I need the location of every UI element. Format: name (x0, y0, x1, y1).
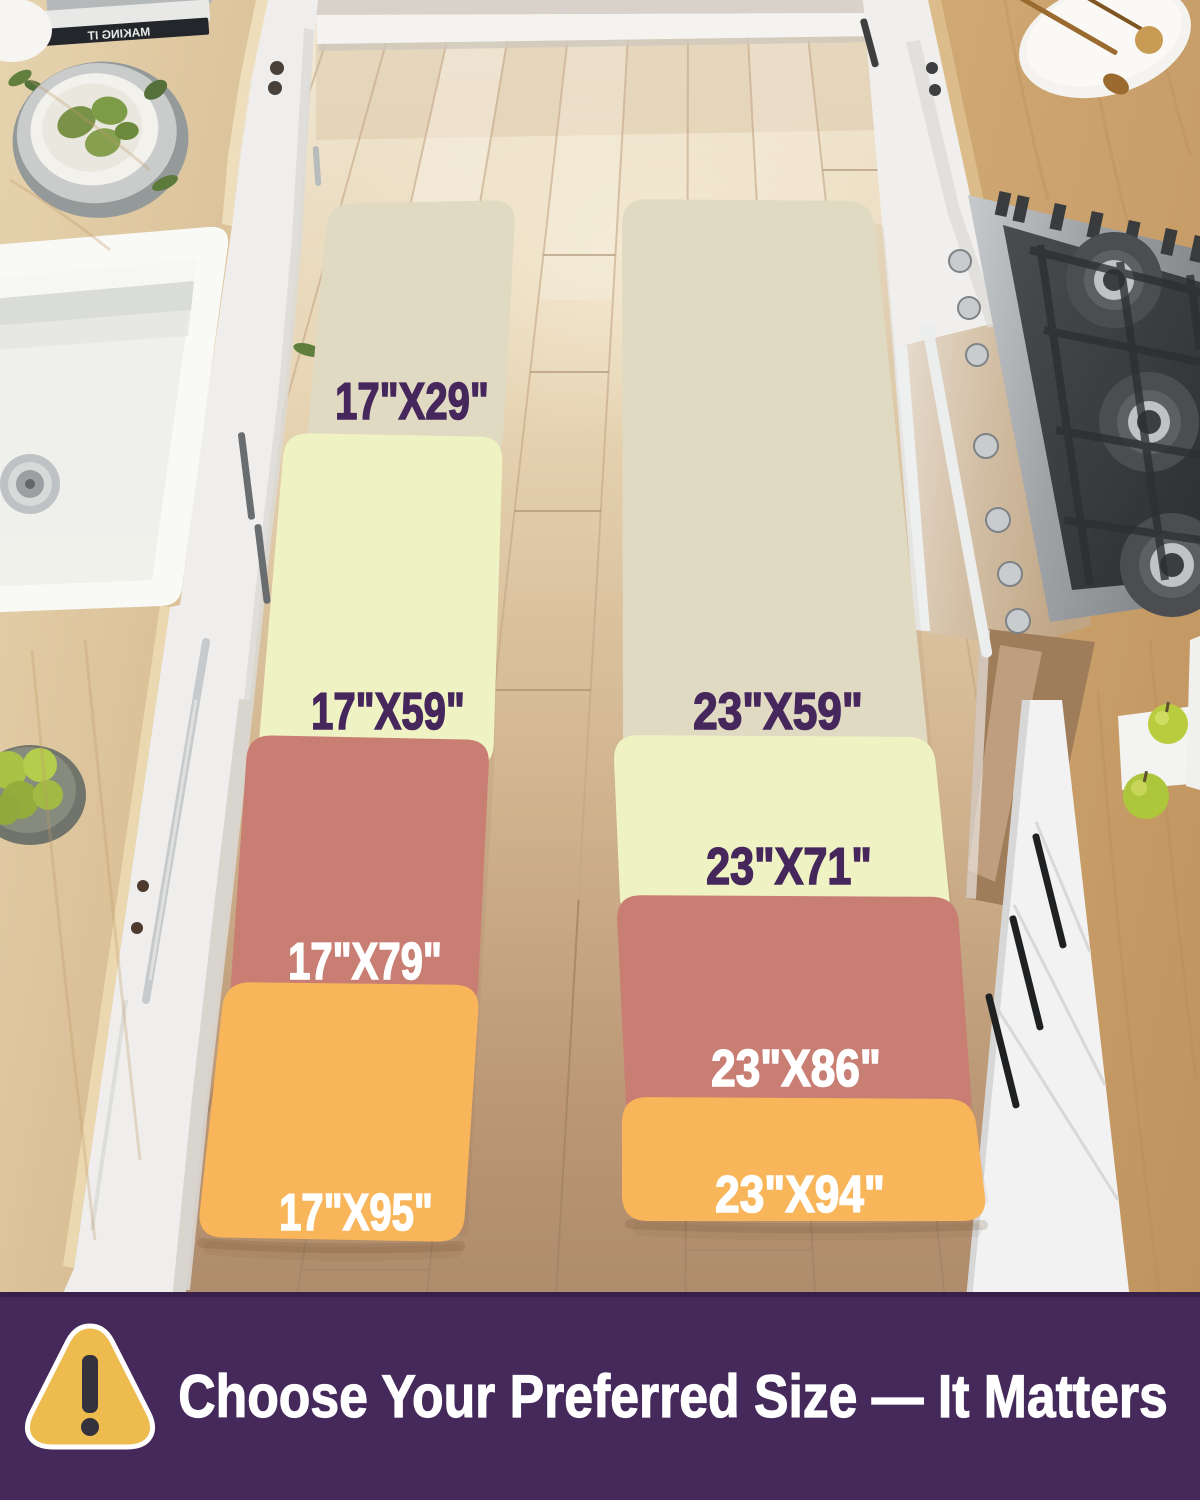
svg-text:Choose Your Preferred Size — I: Choose Your Preferred Size — It Matters (178, 1362, 1167, 1429)
svg-text:17"X29": 17"X29" (335, 372, 489, 430)
svg-text:17"X59": 17"X59" (311, 682, 465, 740)
svg-text:23"X86": 23"X86" (711, 1040, 881, 1098)
svg-text:23"X94": 23"X94" (715, 1166, 885, 1224)
svg-text:17"X79": 17"X79" (288, 932, 442, 990)
svg-text:23"X71": 23"X71" (706, 838, 872, 896)
svg-text:17"X95": 17"X95" (279, 1183, 433, 1241)
svg-text:23"X59": 23"X59" (693, 683, 863, 741)
